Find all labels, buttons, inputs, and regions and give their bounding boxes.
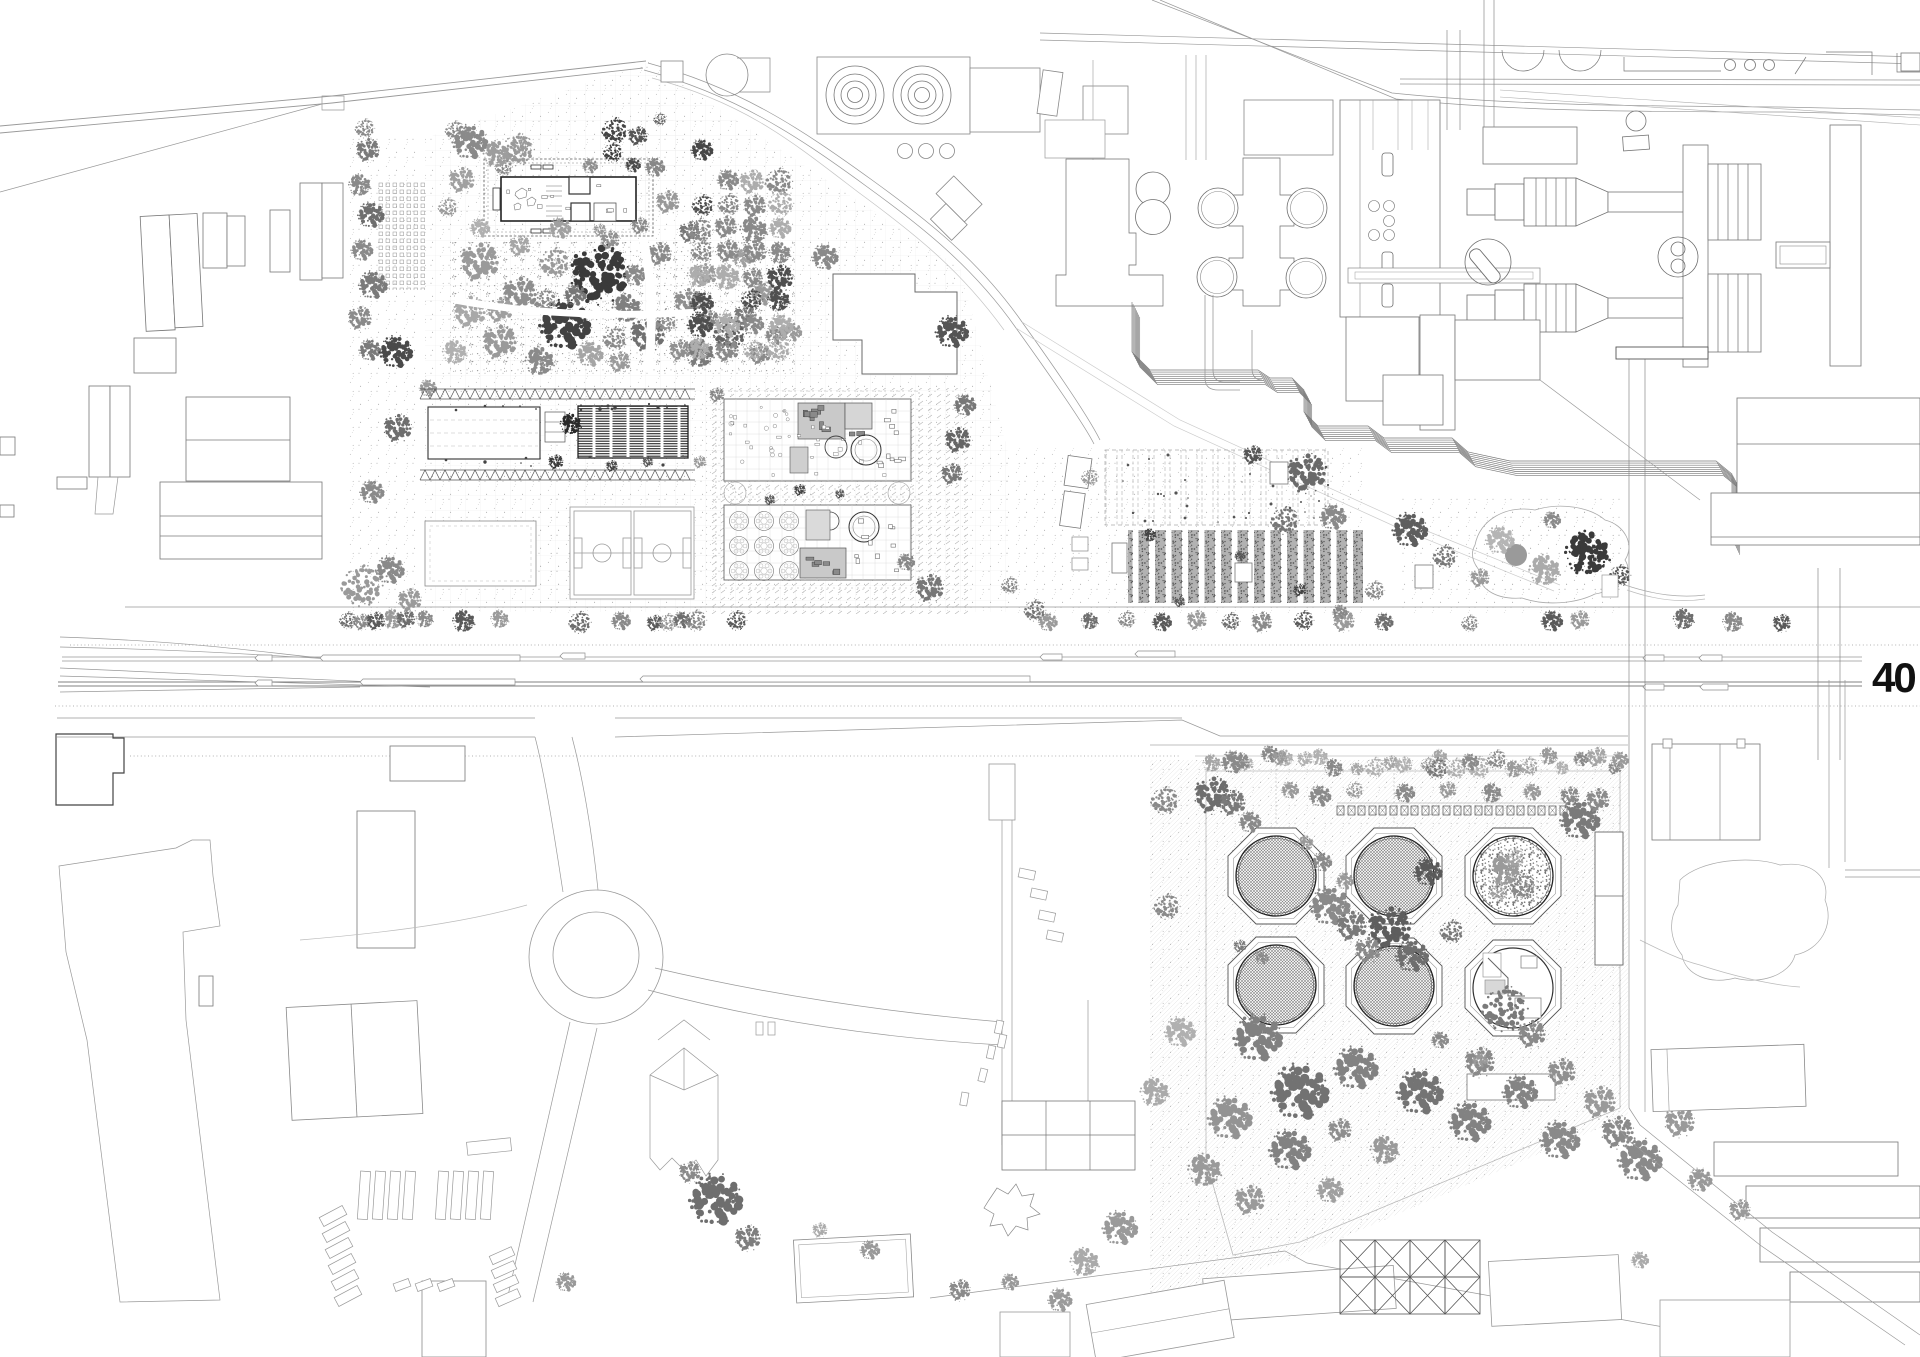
svg-text:40: 40 [1872, 654, 1915, 701]
